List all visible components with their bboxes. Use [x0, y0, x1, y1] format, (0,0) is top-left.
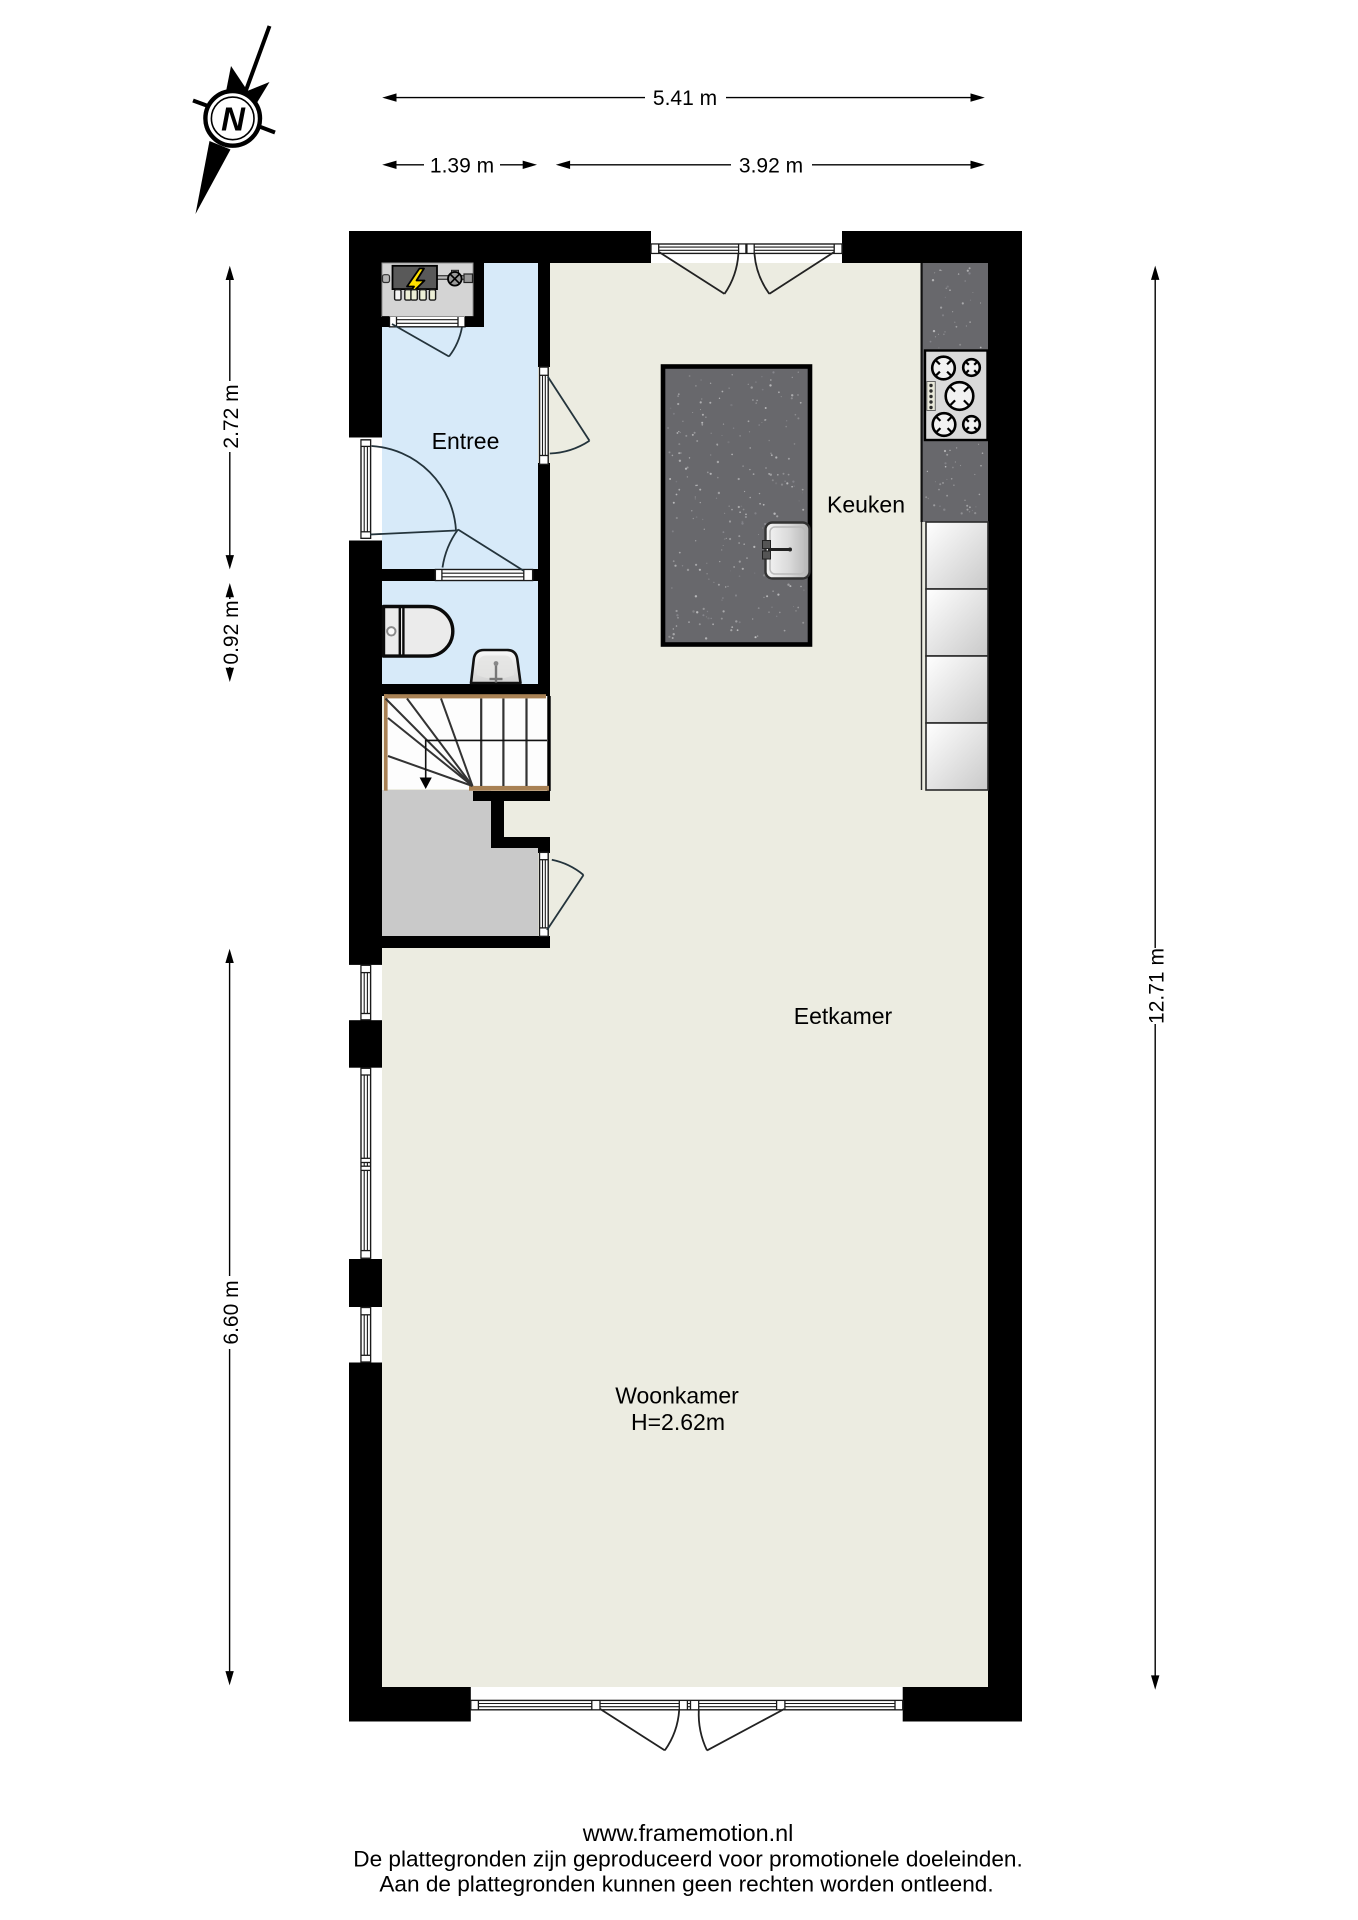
svg-text:H=2.62m: H=2.62m [631, 1409, 725, 1435]
svg-text:2.72 m: 2.72 m [220, 384, 243, 448]
svg-text:www.framemotion.nl: www.framemotion.nl [582, 1820, 794, 1846]
svg-text:N: N [221, 101, 246, 138]
svg-text:1.39 m: 1.39 m [430, 154, 494, 177]
svg-text:Aan de plattegronden kunnen ge: Aan de plattegronden kunnen geen rechten… [379, 1872, 993, 1897]
svg-text:0.92 m: 0.92 m [220, 600, 243, 664]
svg-text:Keuken: Keuken [827, 492, 905, 518]
svg-text:De plattegronden zijn geproduc: De plattegronden zijn geproduceerd voor … [353, 1847, 1022, 1872]
svg-text:6.60 m: 6.60 m [220, 1280, 243, 1344]
svg-text:5.41 m: 5.41 m [653, 87, 717, 110]
svg-text:3.92 m: 3.92 m [739, 154, 803, 177]
svg-text:Woonkamer: Woonkamer [615, 1383, 739, 1409]
svg-text:Entree: Entree [432, 428, 500, 454]
svg-text:12.71 m: 12.71 m [1145, 948, 1168, 1024]
svg-text:Eetkamer: Eetkamer [794, 1003, 893, 1029]
